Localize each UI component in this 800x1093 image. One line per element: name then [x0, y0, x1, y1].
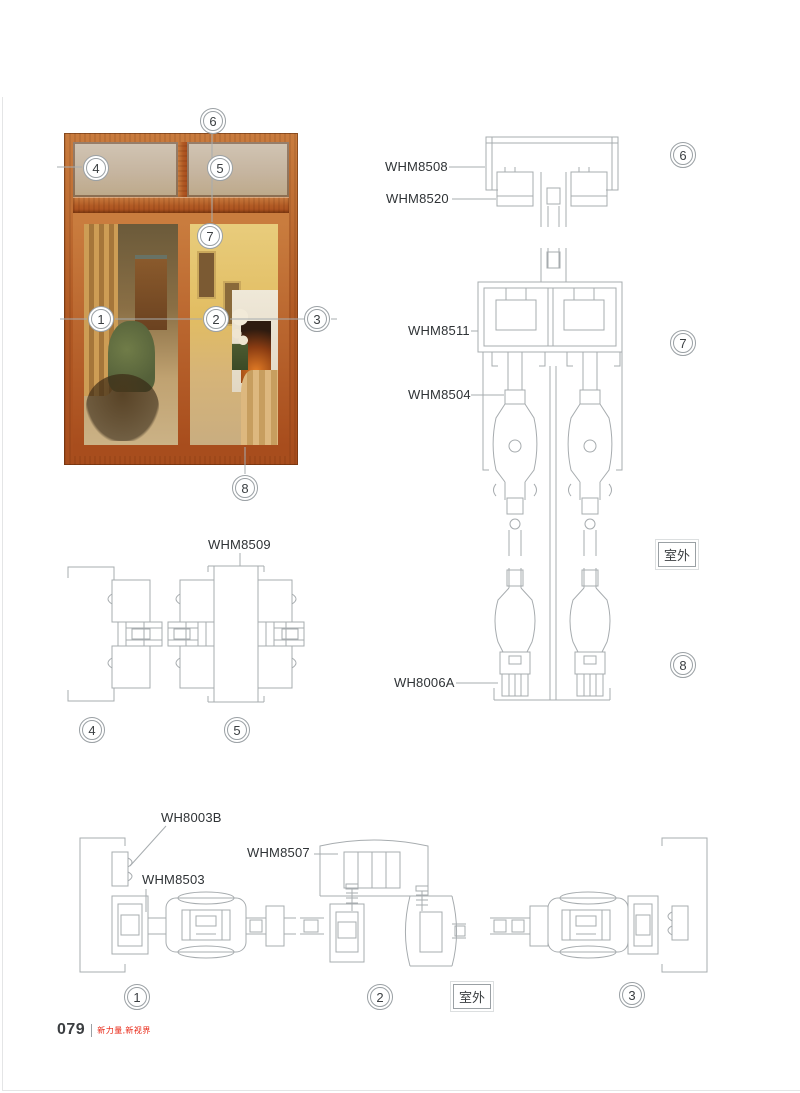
- callout-section-6: 6: [670, 142, 696, 168]
- catalog-page: 1 2 3 4 5 6 7 8 4 5 6 7 8 1 2 3 WHM8508 …: [0, 0, 800, 1093]
- callout-number: 7: [679, 337, 686, 350]
- footer-slogan: 新力量,新视界: [97, 1025, 151, 1036]
- section-4-drawing: [68, 567, 162, 701]
- callout-photo-2: 2: [203, 306, 229, 332]
- part-label-whm8503: WHM8503: [142, 872, 205, 887]
- callout-photo-8: 8: [232, 475, 258, 501]
- callout-number: 4: [88, 724, 95, 737]
- part-label-whm8504: WHM8504: [408, 387, 471, 402]
- part-label-wh8003b: WH8003B: [161, 810, 222, 825]
- callout-number: 1: [97, 313, 104, 326]
- callout-number: 2: [376, 991, 383, 1004]
- part-label-whm8507: WHM8507: [247, 845, 310, 860]
- callout-number: 8: [679, 659, 686, 672]
- page-number: 079: [57, 1021, 85, 1039]
- page-footer: 079 新力量,新视界: [57, 1021, 151, 1039]
- sash-left: [493, 352, 537, 696]
- callout-section-5: 5: [224, 717, 250, 743]
- callout-number: 3: [628, 989, 635, 1002]
- callout-number: 4: [92, 162, 99, 175]
- outdoor-label-bottom: 室外: [453, 984, 491, 1009]
- callout-section-2: 2: [367, 984, 393, 1010]
- callout-photo-4: 4: [83, 155, 109, 181]
- callout-section-1: 1: [124, 984, 150, 1010]
- footer-divider: [91, 1024, 92, 1037]
- callout-number: 8: [241, 482, 248, 495]
- section-vertical-drawing: [478, 137, 622, 700]
- right-section-leaders: [449, 167, 504, 683]
- callout-section-8: 8: [670, 652, 696, 678]
- callout-number: 5: [216, 162, 223, 175]
- outdoor-label-right: 室外: [658, 542, 696, 567]
- callout-photo-6: 6: [200, 108, 226, 134]
- part-label-whm8509: WHM8509: [208, 537, 271, 552]
- callout-number: 6: [679, 149, 686, 162]
- section-2-drawing: [300, 840, 466, 966]
- callout-number: 7: [206, 230, 213, 243]
- callout-number: 3: [313, 313, 320, 326]
- part-label-wh8006a: WH8006A: [394, 675, 455, 690]
- callout-photo-5: 5: [207, 155, 233, 181]
- part-label-whm8511: WHM8511: [408, 323, 470, 338]
- callout-number: 1: [133, 991, 140, 1004]
- part-label-whm8520: WHM8520: [386, 191, 449, 206]
- callout-photo-7: 7: [197, 223, 223, 249]
- section-3-drawing: [490, 838, 707, 972]
- callout-section-3: 3: [619, 982, 645, 1008]
- callout-photo-3: 3: [304, 306, 330, 332]
- section-5-drawing: [168, 553, 304, 702]
- photo-leader-lines: [57, 134, 337, 474]
- callout-photo-1: 1: [88, 306, 114, 332]
- sash-right: [568, 352, 612, 696]
- callout-number: 5: [233, 724, 240, 737]
- callout-section-4: 4: [79, 717, 105, 743]
- part-label-whm8508: WHM8508: [385, 159, 448, 174]
- callout-number: 2: [212, 313, 219, 326]
- callout-number: 6: [209, 115, 216, 128]
- callout-section-7: 7: [670, 330, 696, 356]
